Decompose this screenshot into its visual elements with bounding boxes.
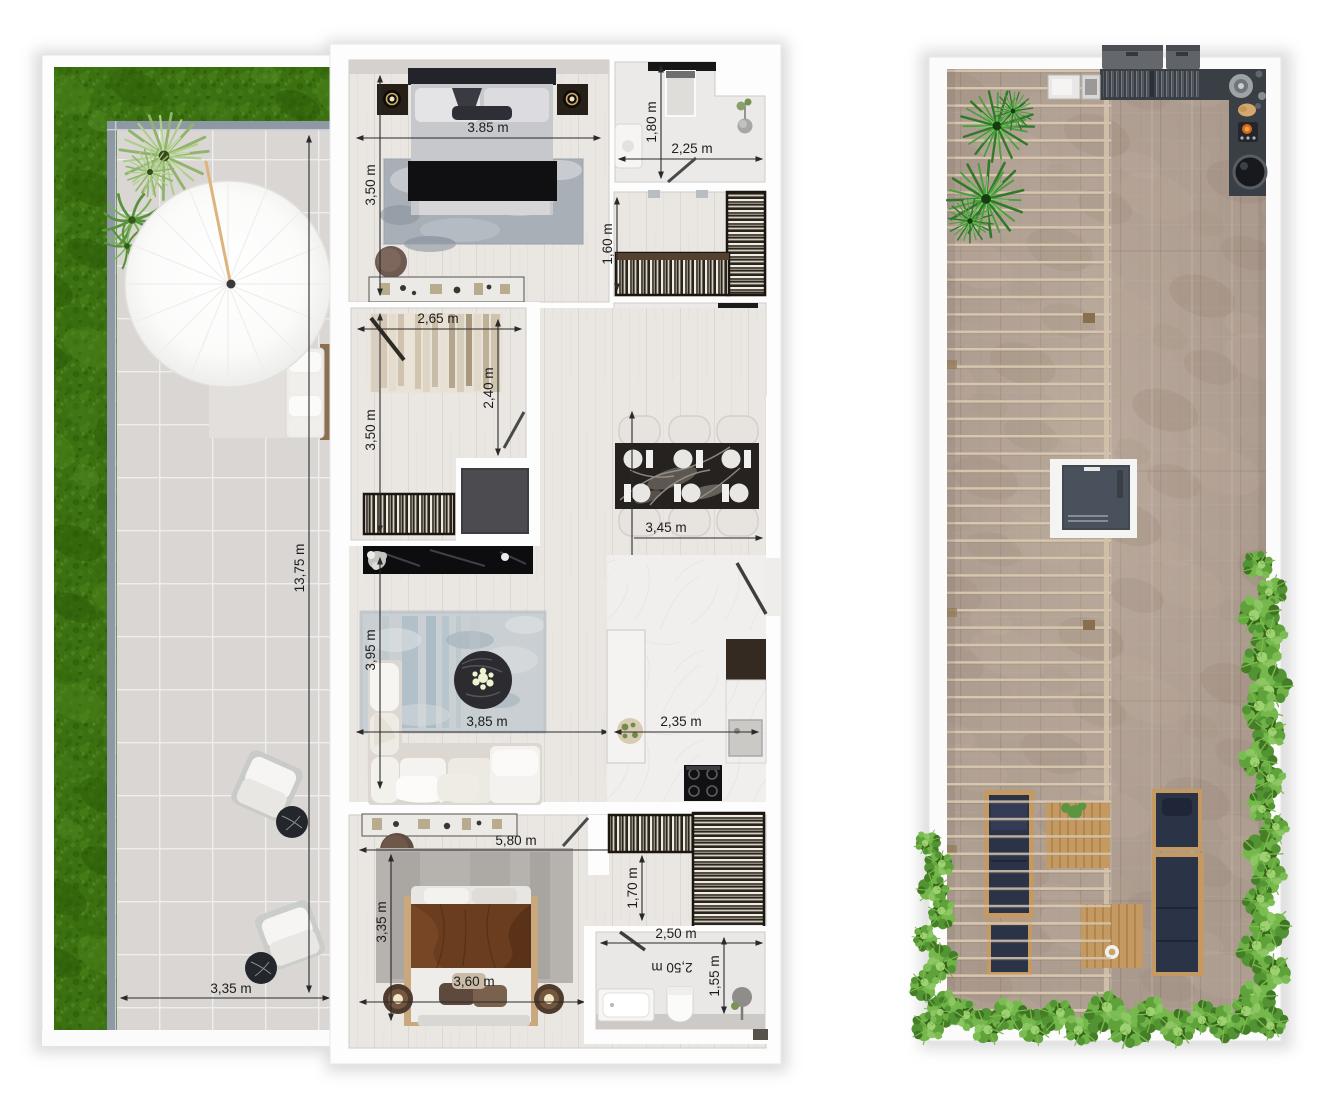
- svg-text:3,35 m: 3,35 m: [374, 901, 389, 942]
- svg-text:2,35 m: 2,35 m: [660, 714, 701, 729]
- svg-text:3,50 m: 3,50 m: [363, 164, 378, 205]
- svg-text:2,65 m: 2,65 m: [417, 311, 458, 326]
- svg-text:13,75 m: 13,75 m: [292, 544, 307, 593]
- svg-text:1,60 m: 1,60 m: [600, 223, 615, 264]
- svg-text:2,50 m: 2,50 m: [655, 926, 696, 941]
- svg-text:1,55 m: 1,55 m: [707, 955, 722, 996]
- svg-text:3,35 m: 3,35 m: [210, 981, 251, 996]
- svg-text:3,45 m: 3,45 m: [645, 520, 686, 535]
- svg-text:3,85 m: 3,85 m: [466, 714, 507, 729]
- svg-text:3,95 m: 3,95 m: [363, 629, 378, 670]
- svg-text:5,80 m: 5,80 m: [495, 833, 536, 848]
- svg-text:3.85 m: 3.85 m: [467, 120, 508, 135]
- svg-text:2,40 m: 2,40 m: [481, 367, 496, 408]
- svg-text:1,80 m: 1,80 m: [644, 101, 659, 142]
- svg-text:2,50 m: 2,50 m: [651, 960, 692, 975]
- svg-text:1,70 m: 1,70 m: [625, 867, 640, 908]
- svg-text:2,25 m: 2,25 m: [671, 141, 712, 156]
- svg-text:3,60 m: 3,60 m: [453, 974, 494, 989]
- svg-text:3,50 m: 3,50 m: [363, 409, 378, 450]
